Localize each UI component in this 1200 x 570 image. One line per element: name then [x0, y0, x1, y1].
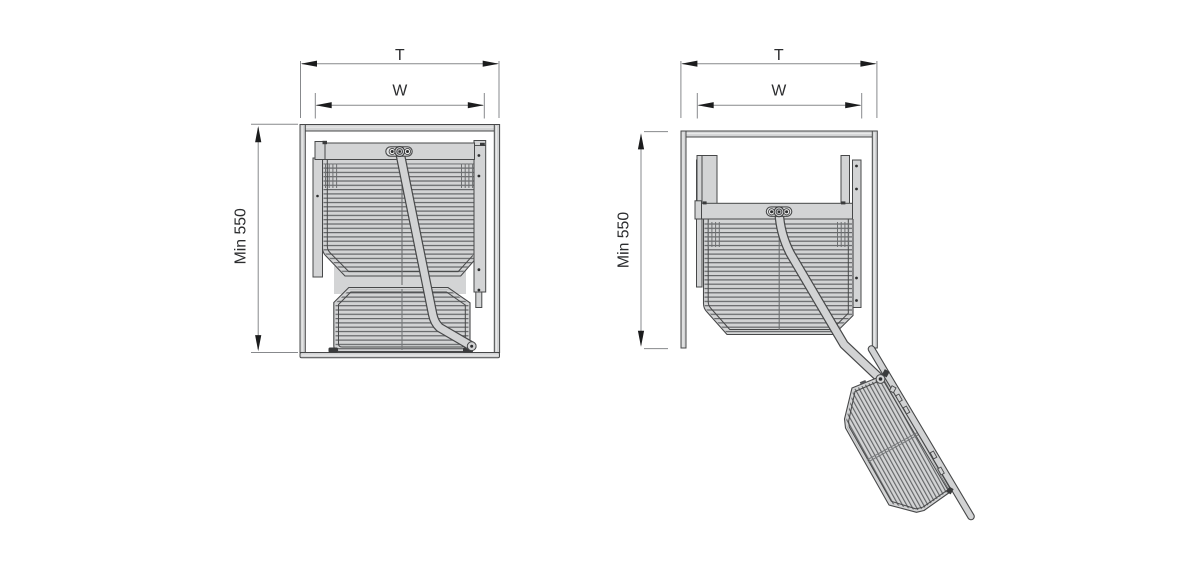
svg-text:T: T: [774, 47, 784, 64]
svg-text:W: W: [771, 83, 786, 100]
svg-text:W: W: [392, 83, 407, 100]
svg-text:Min 550: Min 550: [233, 208, 250, 264]
svg-text:T: T: [395, 47, 405, 64]
svg-text:Min 550: Min 550: [616, 212, 633, 268]
